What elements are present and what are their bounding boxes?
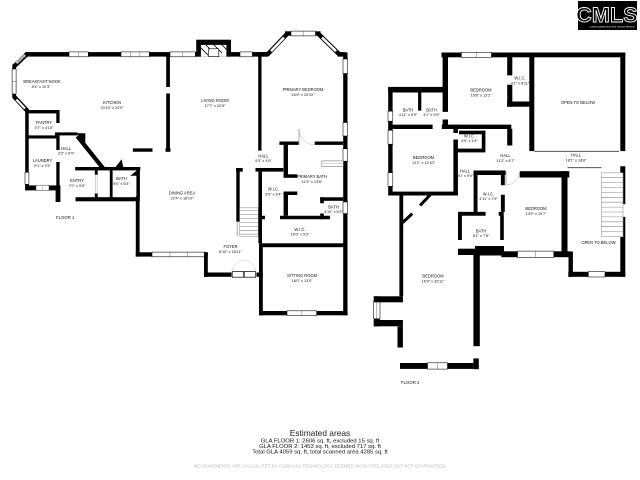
svg-text:KITCHEN: KITCHEN — [103, 100, 121, 105]
svg-text:11'2" x 8'7": 11'2" x 8'7" — [496, 159, 515, 163]
svg-text:LIVING ROOM: LIVING ROOM — [201, 98, 229, 103]
svg-text:11'5" x 13'6": 11'5" x 13'6" — [302, 180, 323, 184]
svg-text:BATH: BATH — [426, 108, 437, 113]
svg-text:4'10" x 5'3": 4'10" x 5'3" — [324, 210, 343, 214]
svg-text:FLOOR 2: FLOOR 2 — [401, 380, 420, 385]
svg-text:PANTRY: PANTRY — [36, 120, 52, 125]
svg-text:HALL: HALL — [460, 169, 471, 174]
svg-text:BREAKFAST NOOK: BREAKFAST NOOK — [23, 79, 61, 84]
svg-text:HALL: HALL — [258, 154, 269, 159]
svg-text:BATH: BATH — [328, 205, 339, 210]
svg-text:Estimated areas: Estimated areas — [290, 428, 351, 438]
svg-text:16'0" x 20'10": 16'0" x 20'10" — [292, 93, 316, 97]
svg-text:22'4" x 18'10": 22'4" x 18'10" — [171, 197, 195, 201]
svg-text:BEDROOM: BEDROOM — [525, 206, 547, 211]
svg-text:BEDROOM: BEDROOM — [470, 88, 492, 93]
svg-text:9'1" x 9'3": 9'1" x 9'3" — [34, 164, 51, 168]
svg-text:Total GLA 4059 sq. ft, total s: Total GLA 4059 sq. ft, total scanned are… — [252, 449, 388, 455]
svg-text:DINING AREA: DINING AREA — [169, 191, 196, 196]
svg-text:FLOOR 1: FLOOR 1 — [56, 215, 75, 220]
svg-text:MEASUREMENTS ARE CALCULATED BY: MEASUREMENTS ARE CALCULATED BY CUBICASA … — [194, 464, 447, 469]
svg-text:W.I.C.: W.I.C. — [464, 134, 475, 139]
svg-text:FOYER: FOYER — [223, 244, 237, 249]
svg-text:BATH: BATH — [476, 229, 487, 234]
svg-text:3'0" x 9'0": 3'0" x 9'0" — [457, 174, 474, 178]
svg-text:CONSOLIDATED MULTIPLE LISTING: CONSOLIDATED MULTIPLE LISTING SERVICE — [589, 26, 635, 29]
svg-text:LAUNDRY: LAUNDRY — [33, 158, 53, 163]
svg-text:20'10" x 21'9": 20'10" x 21'9" — [101, 106, 125, 110]
svg-text:4'1" x 8'11": 4'1" x 8'11" — [511, 82, 530, 86]
svg-text:PRIMARY BATH: PRIMARY BATH — [297, 174, 327, 179]
svg-text:CMLS: CMLS — [576, 3, 638, 27]
svg-text:16'8" x 13'2": 16'8" x 13'2" — [471, 94, 492, 98]
svg-text:13'0" x 19'7": 13'0" x 19'7" — [526, 212, 547, 216]
svg-text:HALL: HALL — [61, 146, 72, 151]
svg-text:HALL: HALL — [571, 153, 582, 158]
svg-text:BEDROOM: BEDROOM — [413, 155, 435, 160]
svg-text:4'1" x 5'9": 4'1" x 5'9" — [423, 113, 440, 117]
svg-text:W.I.C.: W.I.C. — [514, 76, 525, 81]
svg-text:7'0" x 5'5": 7'0" x 5'5" — [69, 184, 86, 188]
svg-text:BATH: BATH — [116, 176, 127, 181]
svg-text:4'11" x 5'9": 4'11" x 5'9" — [399, 113, 418, 117]
svg-text:16'9" x 32'11": 16'9" x 32'11" — [422, 280, 445, 284]
svg-text:8'10" x 18'11": 8'10" x 18'11" — [219, 250, 242, 254]
svg-text:5'0" x 6'4": 5'0" x 6'4" — [265, 193, 282, 197]
svg-text:BEDROOM: BEDROOM — [422, 274, 444, 279]
svg-text:SITTING ROOM: SITTING ROOM — [287, 273, 318, 278]
svg-text:OPEN TO BELOW: OPEN TO BELOW — [561, 100, 595, 105]
svg-text:12'2" x 12'10": 12'2" x 12'10" — [412, 161, 436, 165]
svg-text:W.I.C.: W.I.C. — [268, 187, 279, 192]
svg-text:9'3" x 4'9": 9'3" x 4'9" — [255, 159, 272, 163]
svg-text:4'11" x 7'9": 4'11" x 7'9" — [479, 197, 498, 201]
svg-text:8'1" x 7'8": 8'1" x 7'8" — [473, 234, 490, 238]
svg-text:2'3" x 6'9": 2'3" x 6'9" — [58, 152, 75, 156]
svg-text:18'1" x 18'8": 18'1" x 18'8" — [566, 159, 587, 163]
svg-text:9'0" x 6'4": 9'0" x 6'4" — [113, 182, 130, 186]
svg-text:PRIMARY BEDROOM: PRIMARY BEDROOM — [283, 87, 324, 92]
svg-text:HALL: HALL — [500, 153, 511, 158]
svg-text:8'4" x 10'3": 8'4" x 10'3" — [32, 85, 51, 89]
svg-text:16'0" x 5'3": 16'0" x 5'3" — [291, 233, 310, 237]
svg-text:BATH: BATH — [403, 108, 414, 113]
svg-text:16'0" x 13'0": 16'0" x 13'0" — [292, 279, 313, 283]
svg-text:OPEN TO BELOW: OPEN TO BELOW — [581, 240, 615, 245]
svg-text:ENTRY: ENTRY — [70, 178, 84, 183]
svg-text:4'9" x 4'4": 4'9" x 4'4" — [461, 139, 478, 143]
svg-text:W.I.C.: W.I.C. — [483, 192, 494, 197]
svg-text:W.I.C.: W.I.C. — [294, 227, 305, 232]
svg-text:17'7" x 20'5": 17'7" x 20'5" — [205, 104, 226, 108]
svg-text:5'7" x 4'10": 5'7" x 4'10" — [35, 126, 54, 130]
